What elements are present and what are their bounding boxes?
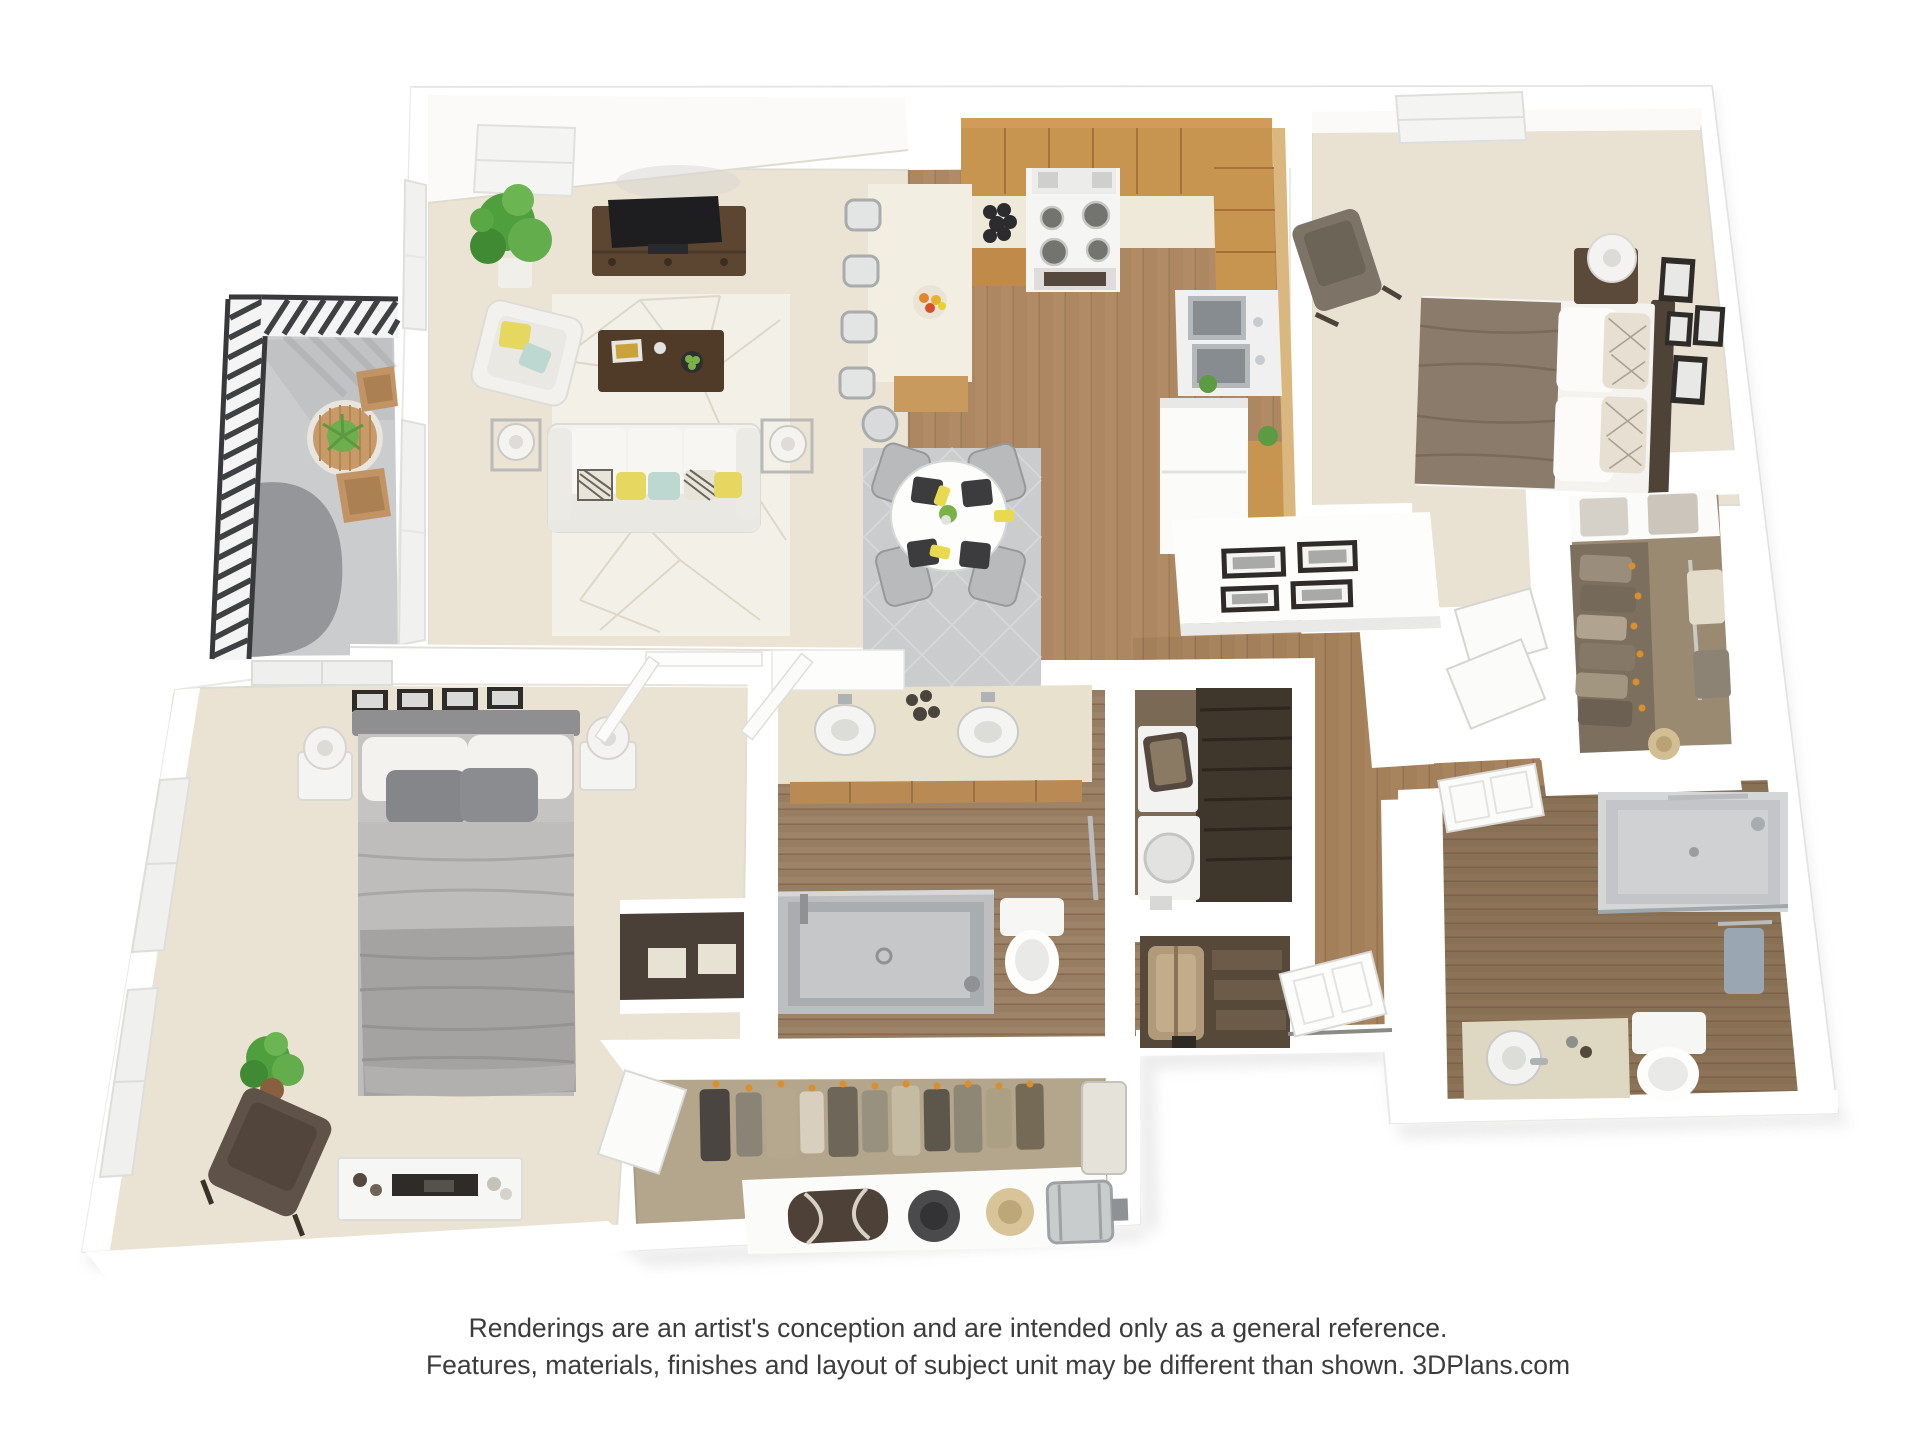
svg-text:Renderings are an artist's con: Renderings are an artist's conception an… (469, 1313, 1448, 1343)
svg-text:Features, materials, finishes: Features, materials, finishes and layout… (426, 1350, 1570, 1380)
